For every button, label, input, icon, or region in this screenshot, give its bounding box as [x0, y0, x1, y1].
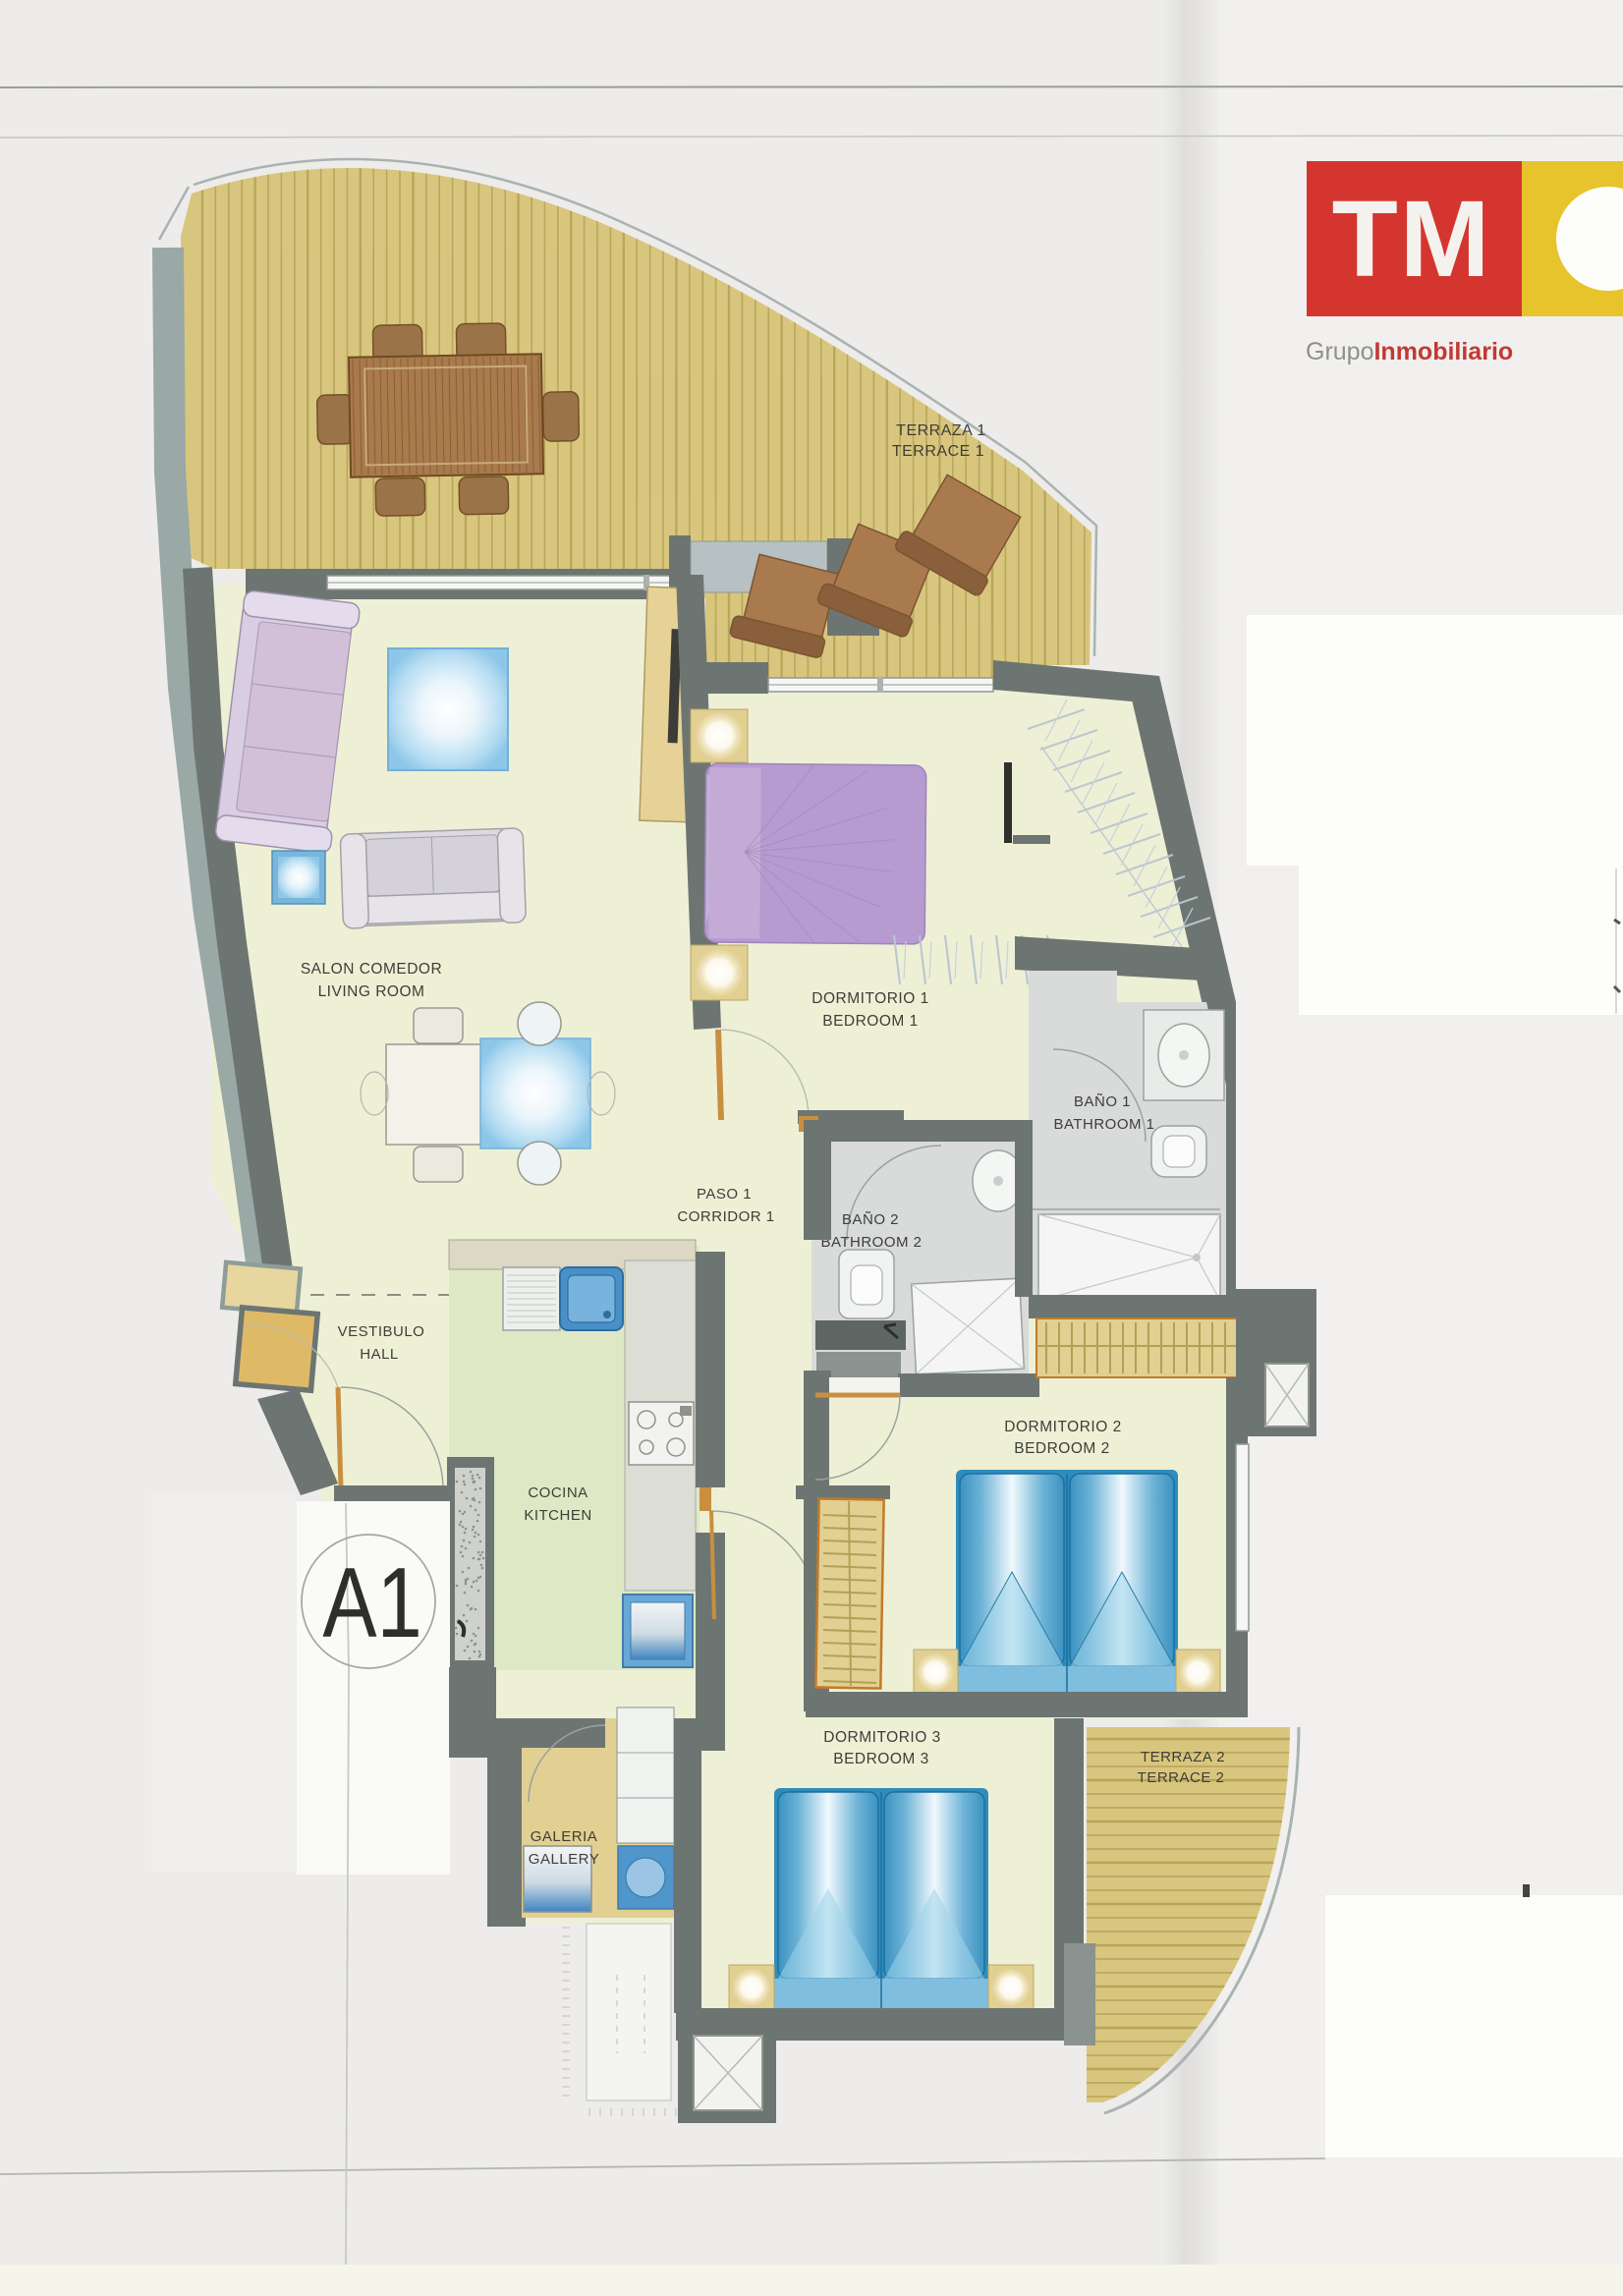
- svg-text:GALLERY: GALLERY: [529, 1851, 599, 1868]
- svg-text:BEDROOM 1: BEDROOM 1: [822, 1013, 919, 1030]
- svg-text:CORRIDOR 1: CORRIDOR 1: [677, 1208, 774, 1225]
- svg-text:COCINA: COCINA: [528, 1484, 588, 1501]
- svg-text:KITCHEN: KITCHEN: [524, 1507, 591, 1524]
- svg-text:DORMITORIO 2: DORMITORIO 2: [1004, 1419, 1121, 1435]
- svg-text:LIVING ROOM: LIVING ROOM: [318, 983, 425, 1000]
- svg-text:BEDROOM 2: BEDROOM 2: [1014, 1440, 1110, 1457]
- svg-text:BAÑO 1: BAÑO 1: [1074, 1093, 1131, 1110]
- svg-text:TM: TM: [1332, 179, 1492, 300]
- svg-text:TERRAZA 1: TERRAZA 1: [896, 422, 986, 439]
- svg-text:A1: A1: [322, 1546, 421, 1658]
- svg-text:TERRACE 2: TERRACE 2: [1138, 1769, 1225, 1786]
- svg-text:BAÑO 2: BAÑO 2: [842, 1211, 899, 1228]
- svg-text:SALON COMEDOR: SALON COMEDOR: [301, 961, 442, 978]
- svg-text:TERRAZA 2: TERRAZA 2: [1141, 1749, 1225, 1765]
- svg-text:HALL: HALL: [360, 1346, 399, 1363]
- svg-text:GrupoInmobiliario: GrupoInmobiliario: [1306, 338, 1513, 365]
- svg-text:DORMITORIO 3: DORMITORIO 3: [823, 1729, 940, 1746]
- svg-text:VESTIBULO: VESTIBULO: [338, 1323, 425, 1340]
- svg-text:GALERIA: GALERIA: [531, 1828, 598, 1845]
- svg-text:DORMITORIO 1: DORMITORIO 1: [811, 990, 928, 1007]
- svg-text:BEDROOM 3: BEDROOM 3: [833, 1751, 929, 1767]
- svg-text:PASO 1: PASO 1: [697, 1186, 752, 1203]
- svg-text:BATHROOM 1: BATHROOM 1: [1053, 1116, 1154, 1133]
- svg-text:BATHROOM 2: BATHROOM 2: [820, 1234, 922, 1251]
- svg-text:TERRACE 1: TERRACE 1: [892, 443, 984, 460]
